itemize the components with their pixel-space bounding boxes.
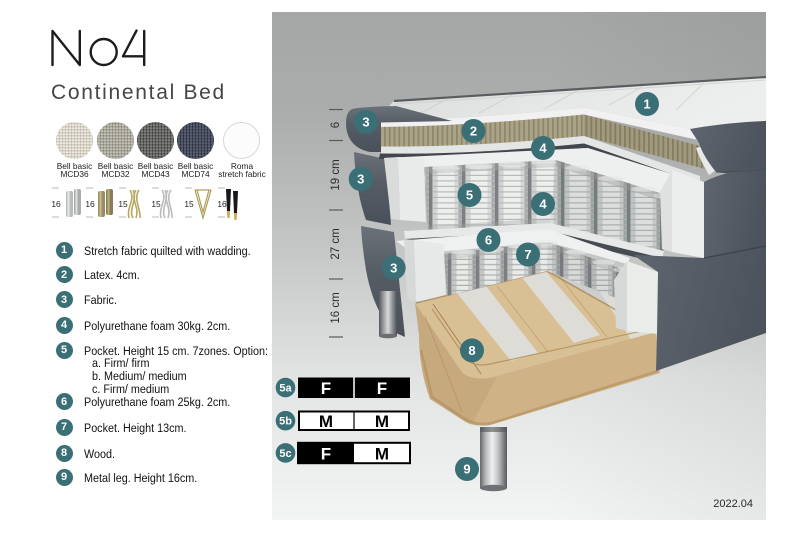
svg-text:16: 16 [51,199,61,209]
svg-text:15: 15 [151,199,161,209]
svg-text:15: 15 [184,199,194,209]
svg-text:6: 6 [485,233,492,248]
svg-text:7: 7 [524,247,531,262]
svg-text:F: F [377,379,387,398]
svg-text:M: M [319,412,333,431]
svg-text:6: 6 [330,122,342,128]
svg-text:27 cm: 27 cm [330,228,342,259]
svg-text:16 cm: 16 cm [330,292,342,323]
svg-text:15: 15 [118,199,128,209]
svg-text:4: 4 [539,197,547,212]
svg-text:16: 16 [217,199,227,209]
svg-text:5b: 5b [279,416,292,428]
svg-text:2022.04: 2022.04 [713,498,753,510]
svg-text:5: 5 [466,188,473,203]
svg-text:F: F [321,445,331,464]
svg-text:M: M [375,445,389,464]
svg-text:F: F [321,379,331,398]
svg-text:4: 4 [539,141,547,156]
svg-text:M: M [375,412,389,431]
svg-text:1: 1 [643,97,650,112]
svg-text:3: 3 [362,115,369,130]
svg-text:5c: 5c [279,448,291,460]
svg-text:19 cm: 19 cm [330,159,342,190]
svg-text:5a: 5a [279,383,292,395]
svg-text:8: 8 [468,343,475,358]
svg-text:9: 9 [463,462,470,477]
svg-text:16: 16 [85,199,95,209]
svg-text:3: 3 [357,172,364,187]
svg-text:3: 3 [390,260,397,275]
svg-text:2: 2 [470,124,477,139]
